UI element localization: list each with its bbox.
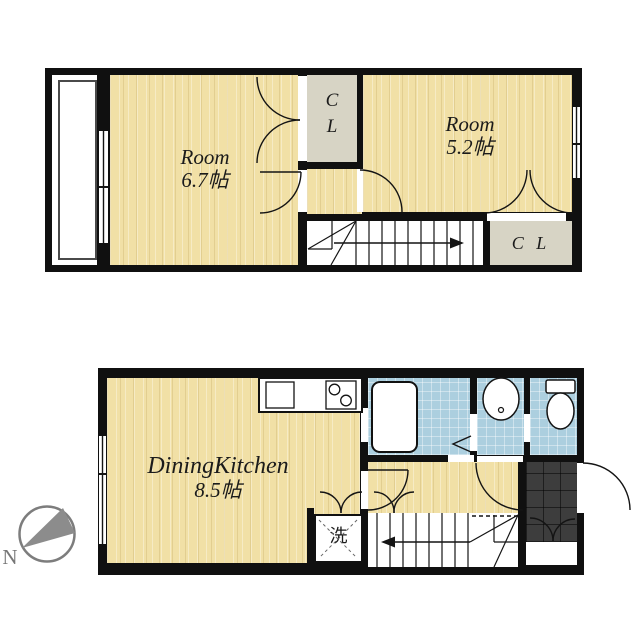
dining-kitchen-area: 8.5帖	[118, 479, 318, 502]
room-6-7-label: Room 6.7帖	[120, 146, 290, 192]
entrance-porch	[526, 542, 577, 565]
dk-hall-door-opening	[361, 471, 368, 509]
compass-north-label: N	[0, 546, 20, 569]
room-5-2-label: Room 5.2帖	[385, 113, 555, 159]
bath-wash-door-opening	[470, 414, 477, 451]
room-5-2-window	[573, 107, 580, 178]
room-6-7-door-opening-bottom	[298, 170, 307, 212]
compass-icon	[20, 507, 76, 562]
front-door-opening	[577, 463, 585, 513]
room-6-7-name: Room	[120, 146, 290, 169]
room-5-2-area: 5.2帖	[385, 136, 555, 159]
bathtub-icon	[371, 381, 418, 453]
wash-hall-door-opening	[477, 456, 523, 462]
closet-door-opening	[487, 213, 566, 221]
room-6-7-area: 6.7帖	[120, 169, 290, 192]
dk-bath-wall-opening	[361, 408, 368, 442]
dk-window	[99, 436, 106, 544]
closet-top-label: C L	[307, 88, 357, 139]
laundry-wall	[307, 508, 314, 567]
upper-corridor	[307, 169, 362, 214]
balcony-railing	[58, 80, 97, 260]
balcony-window	[99, 131, 108, 243]
closet-side-label: C L	[490, 234, 572, 254]
wash-toilet-door-opening	[524, 414, 530, 442]
kitchen-counter	[258, 378, 363, 413]
laundry-label: 洗	[314, 527, 363, 547]
front-door-arc	[583, 463, 630, 510]
floorplan-canvas: Room 6.7帖 Room 5.2帖 C L C L	[0, 0, 640, 640]
washroom	[477, 378, 524, 455]
room-6-7-door-opening-top	[298, 76, 307, 161]
dining-kitchen-name: DiningKitchen	[118, 453, 318, 479]
room-5-2-name: Room	[385, 113, 555, 136]
dining-kitchen-label: DiningKitchen 8.5帖	[118, 453, 318, 502]
toilet-room	[530, 378, 577, 455]
bath-door-opening	[448, 455, 474, 462]
lower-stairs	[368, 513, 518, 567]
hallway	[368, 462, 518, 513]
upper-stairs	[307, 221, 483, 265]
entrance-genkan	[526, 462, 577, 542]
